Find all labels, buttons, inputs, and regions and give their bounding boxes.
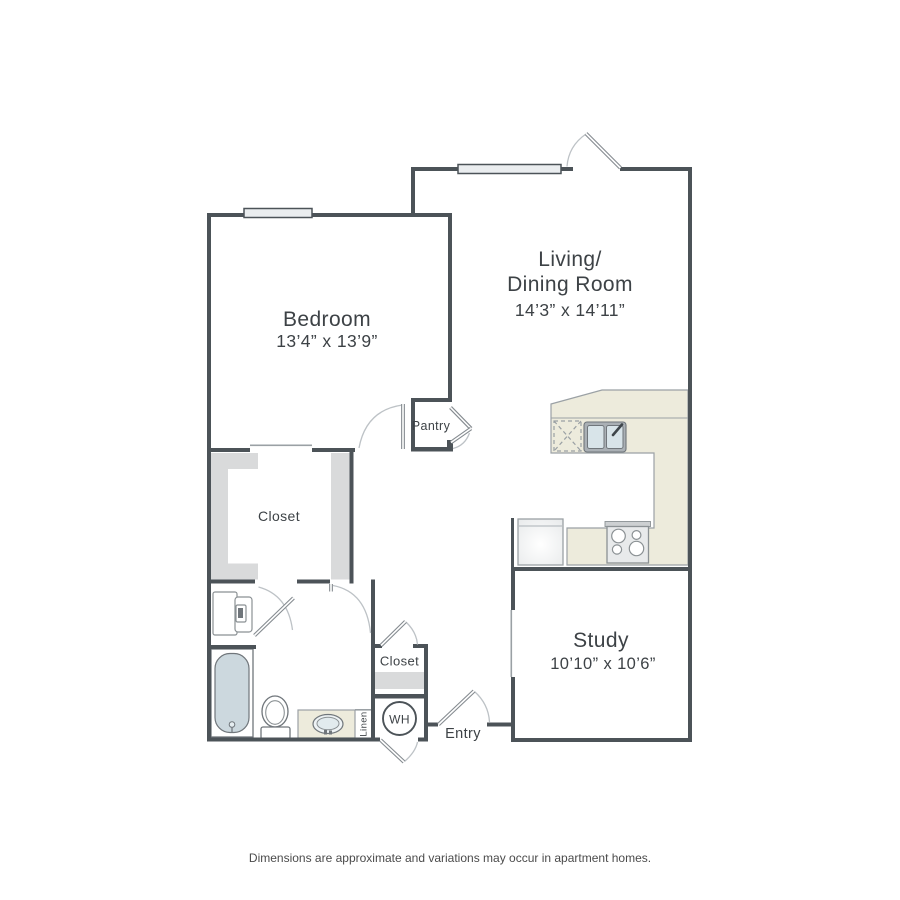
living-label-line1: Living/ <box>538 248 602 271</box>
wall-segment <box>424 723 438 727</box>
wall-segment <box>411 447 453 452</box>
wall-segment <box>411 167 415 217</box>
wall-segment <box>207 213 244 217</box>
bathtub-icon <box>211 649 253 737</box>
living-dims: 14’3” x 14’11” <box>515 300 625 320</box>
stove-icon <box>605 522 651 564</box>
linen-label: Linen <box>359 711 370 736</box>
wall-segment <box>511 567 692 571</box>
toilet-icon <box>261 696 290 739</box>
wall-segment <box>207 580 255 584</box>
wall-segment <box>207 645 256 649</box>
kitchen <box>518 390 688 565</box>
bathroom-door-right <box>331 584 371 633</box>
wall-segment <box>620 167 692 171</box>
pantry-label: Pantry <box>412 419 451 433</box>
wall-segment <box>297 580 330 584</box>
burner <box>632 531 641 540</box>
study-opening-line <box>511 610 513 677</box>
wall-segment <box>411 398 452 402</box>
wall-segment <box>312 213 452 217</box>
closet-opening-line <box>250 445 312 447</box>
opening-lines <box>250 445 512 678</box>
study-label: Study <box>573 629 629 652</box>
wall-segment <box>448 213 452 402</box>
wall-segment <box>371 694 428 699</box>
pantry-door <box>451 408 472 449</box>
wall-segment <box>511 518 514 567</box>
bathroom <box>211 592 371 739</box>
living-label-line2: Dining Room <box>507 273 633 296</box>
wall-segment <box>371 580 375 742</box>
wall-segment <box>688 167 692 742</box>
wall-segment <box>207 738 375 742</box>
bedroom-closet-label: Closet <box>258 508 300 524</box>
wall-segment <box>207 213 211 742</box>
bedroom-label: Bedroom <box>283 308 371 331</box>
burner <box>629 541 643 555</box>
bedroom-dims: 13’4” x 13’9” <box>276 331 378 351</box>
wall-segment <box>424 644 428 742</box>
hall-closet-label: Closet <box>380 654 419 669</box>
hall-closet-door <box>381 622 418 646</box>
wall-segment <box>350 448 354 584</box>
hall-closet-shelf <box>375 672 424 689</box>
vanity-sink-icon <box>298 710 355 738</box>
bedroom-closet-shelf-right <box>331 453 350 580</box>
wall-segment <box>511 567 515 610</box>
bedroom-closet-shelf-bottom-arm <box>228 564 258 580</box>
bedroom-window <box>244 209 312 218</box>
study-dims: 10’10” x 10’6” <box>550 655 656 673</box>
labels: Bedroom 13’4” x 13’9” Living/ Dining Roo… <box>258 248 656 742</box>
water-heater-label: WH <box>389 713 410 727</box>
floor-plan: Bedroom 13’4” x 13’9” Living/ Dining Roo… <box>0 0 900 900</box>
living-room-window <box>458 165 561 174</box>
wall-segment <box>561 167 573 171</box>
burner <box>612 545 621 554</box>
windows <box>244 165 561 218</box>
wall-segment <box>511 677 515 742</box>
wall-segment <box>312 448 355 452</box>
bedroom-closet-shelf-top-arm <box>228 453 258 469</box>
disclaimer-text: Dimensions are approximate and variation… <box>249 851 651 865</box>
bathroom-door-left <box>255 587 294 636</box>
bedroom-door <box>359 404 403 449</box>
wall-segment <box>411 167 458 171</box>
burner <box>612 529 626 543</box>
entry-label: Entry <box>445 726 481 742</box>
entry-door <box>439 691 490 725</box>
washer-dryer-icon <box>213 592 252 635</box>
linen-shelf-line <box>355 709 371 711</box>
wall-segment <box>487 723 512 727</box>
wall-segment <box>418 738 428 742</box>
wall-segment <box>511 738 692 742</box>
kitchen-sink-icon <box>584 422 626 452</box>
wall-segment <box>207 448 250 452</box>
wall-segment <box>371 738 380 742</box>
water-heater-door <box>381 740 418 762</box>
living-room-door <box>567 134 621 169</box>
refrigerator-icon <box>518 519 563 565</box>
bedroom-closet-shelf-left <box>211 453 228 580</box>
